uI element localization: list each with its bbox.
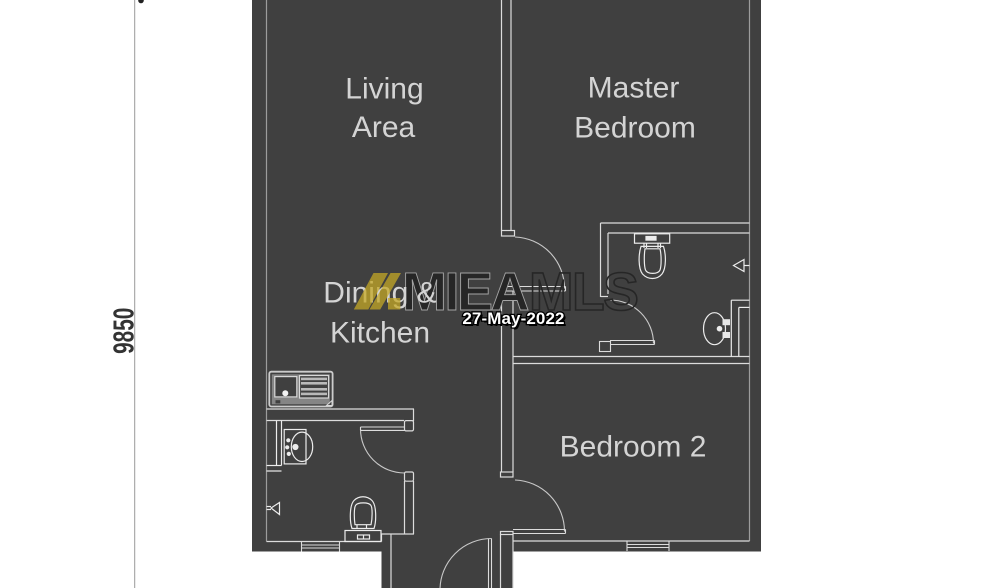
svg-text:Living: Living [345,72,423,105]
svg-text:Kitchen: Kitchen [330,316,430,349]
svg-text:27-May-2022: 27-May-2022 [462,309,564,328]
svg-text:9850: 9850 [108,308,140,354]
svg-text:Bedroom 2: Bedroom 2 [560,431,707,464]
svg-text:Area: Area [352,111,416,144]
svg-text:Master: Master [588,72,680,105]
svg-text:Bedroom: Bedroom [574,111,696,144]
